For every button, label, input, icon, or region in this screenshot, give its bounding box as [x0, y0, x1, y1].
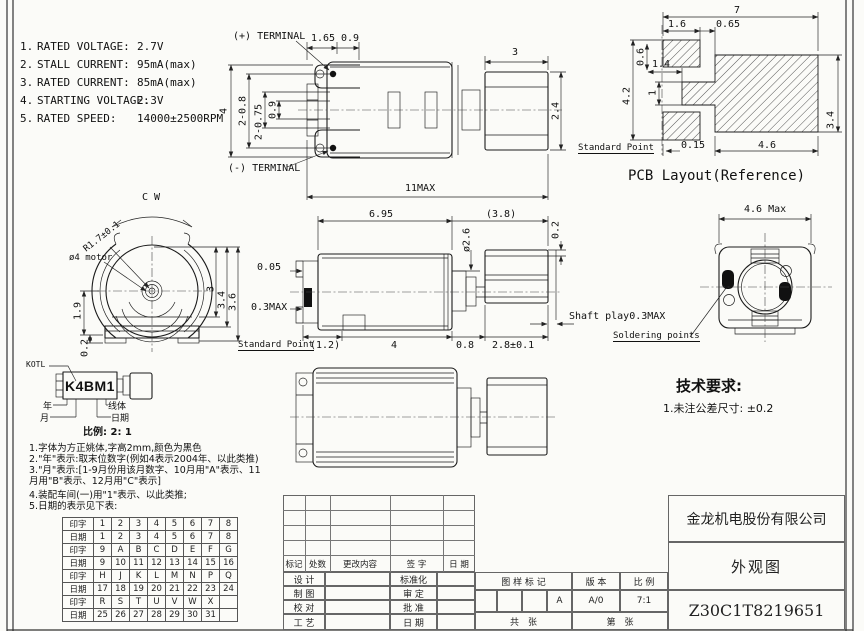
dim-label: 0.9 [341, 33, 359, 44]
spec-label: RATED CURRENT: [37, 76, 130, 89]
sig-review-label: 审 定 [390, 586, 437, 600]
sig-review-value [437, 586, 475, 600]
date-table-cell: M [166, 570, 184, 583]
note-line: 月用"B"表示、12月用"C"表示] [29, 473, 161, 487]
rev-header-content: 更改内容 [330, 556, 390, 571]
standard-point-label: Standard Point [578, 143, 654, 154]
spec-num: 4. [20, 94, 33, 107]
date-table-cell: K [130, 570, 148, 583]
date-table-cell: 印字 [63, 570, 94, 583]
dim-label: 1.6 [668, 19, 686, 30]
date-table-cell: V [166, 596, 184, 609]
date-table-cell: 2 [112, 531, 130, 544]
dim-label: 4 [391, 340, 397, 351]
date-table-cell: 30 [184, 609, 202, 622]
date-table-cell: 日期 [63, 609, 94, 622]
date-table-cell: 10 [112, 557, 130, 570]
spec-value: 95mA(max) [137, 58, 197, 71]
date-table-cell: H [94, 570, 112, 583]
sig-draft-label: 制 图 [283, 586, 325, 600]
date-table-cell: F [202, 544, 220, 557]
sig-approve-label: 批 准 [390, 600, 437, 614]
date-table-cell: 23 [202, 583, 220, 596]
spec-label: RATED VOLTAGE: [37, 40, 130, 53]
drawing-sheet: 1. RATED VOLTAGE: 2.7V 2. STALL CURRENT:… [0, 0, 864, 631]
date-table-cell: R [94, 596, 112, 609]
dim-label: 1.9 [73, 302, 84, 320]
spec-label: STARTING VOLTAGE: [37, 94, 150, 107]
stamp-cell [475, 590, 497, 612]
date-table-cell: Q [220, 570, 238, 583]
date-table-cell: N [184, 570, 202, 583]
date-table-cell: 25 [94, 609, 112, 622]
sig-standardize-label: 标准化 [390, 572, 437, 586]
date-table-cell: X [202, 596, 220, 609]
bottom-view-drawing [290, 368, 556, 467]
top-view-drawing [228, 41, 566, 200]
dim-label: 2-0.8 [238, 96, 249, 126]
date-table-cell: 28 [148, 609, 166, 622]
sig-approve-value [437, 600, 475, 614]
date-code-table: 印字12345678日期12345678印字9ABCDEFG日期91011121… [62, 517, 238, 622]
date-table-cell: 6 [184, 518, 202, 531]
date-table-cell: L [148, 570, 166, 583]
date-table-cell: B [130, 544, 148, 557]
stamp-cell [522, 590, 547, 612]
date-table-cell: 6 [184, 531, 202, 544]
spec-label: RATED SPEED: [37, 112, 116, 125]
date-table-cell: 29 [166, 609, 184, 622]
dim-label: 0.2 [551, 221, 562, 239]
date-table-cell: J [112, 570, 130, 583]
date-table-cell: 17 [94, 583, 112, 596]
marking-scale-label: 比例: 2: 1 [83, 423, 132, 438]
dim-label: 0.6 [636, 48, 647, 66]
spec-num: 1. [20, 40, 33, 53]
rev-header-date: 日 期 [443, 556, 475, 571]
date-table-cell: 18 [112, 583, 130, 596]
dim-label: 1 [648, 90, 659, 96]
pcb-layout-title: PCB Layout(Reference) [628, 168, 805, 184]
date-table-cell: 印字 [63, 544, 94, 557]
terminal-minus-label: (-) TERMINAL [228, 163, 300, 174]
dim-label: 4.2 [622, 87, 633, 105]
date-table-cell: 2 [112, 518, 130, 531]
date-table-cell: U [148, 596, 166, 609]
spec-num: 3. [20, 76, 33, 89]
sig-date-value [437, 614, 475, 630]
spec-label: STALL CURRENT: [37, 58, 130, 71]
date-table-cell: 4 [148, 531, 166, 544]
dim-label: 0.8 [456, 340, 474, 351]
dim-label: 0.3MAX [251, 302, 287, 313]
dim-label: 1.4 [652, 59, 670, 70]
sig-date-label: 日 期 [390, 614, 437, 630]
sig-design-label: 设 计 [283, 572, 325, 586]
dim-label: 6.95 [369, 209, 393, 220]
dim-label: 3 [206, 286, 217, 292]
stamp-cell [497, 590, 522, 612]
side-view-drawing [290, 216, 729, 341]
date-table-cell: 印字 [63, 518, 94, 531]
date-table-cell: 9 [94, 544, 112, 557]
date-table-cell: 7 [202, 531, 220, 544]
rev-header-count: 处数 [305, 556, 330, 571]
date-table-cell: 22 [184, 583, 202, 596]
dim-label: 0.2 [80, 339, 91, 357]
date-table-cell: 印字 [63, 596, 94, 609]
date-table-cell: T [130, 596, 148, 609]
rotation-cw-label: C W [142, 192, 160, 203]
date-table-cell [220, 596, 238, 609]
date-table-cell: 21 [166, 583, 184, 596]
dim-label: ø2.6 [462, 228, 473, 252]
spec-value: 2.7V [137, 40, 164, 53]
dim-label: 3.6 [228, 293, 239, 311]
dim-label: 3.4 [217, 291, 228, 309]
dim-label: (1.2) [310, 340, 340, 351]
rev-header-mark: 标记 [283, 556, 305, 571]
date-table-cell: 26 [112, 609, 130, 622]
date-table-cell: 1 [94, 531, 112, 544]
date-table-cell: 13 [166, 557, 184, 570]
dim-label: 11MAX [405, 183, 435, 194]
dim-label: 7 [734, 5, 740, 16]
date-table-cell: 11 [130, 557, 148, 570]
date-table-cell: 3 [130, 518, 148, 531]
date-table-cell: E [184, 544, 202, 557]
date-table-cell: A [112, 544, 130, 557]
marking-month-label: 月 [40, 411, 49, 424]
date-table-cell: 1 [94, 518, 112, 531]
pcb-layout-drawing [630, 12, 842, 156]
dim-label: 3 [512, 47, 518, 58]
dim-label: 3.4 [826, 111, 837, 129]
date-table-cell: 8 [220, 518, 238, 531]
date-table-cell: D [166, 544, 184, 557]
scale-value: 7:1 [620, 590, 668, 612]
sig-draft-value [325, 586, 390, 600]
dim-label: 0.05 [257, 262, 281, 273]
dim-label: 0.15 [681, 140, 705, 151]
date-table-cell: 日期 [63, 583, 94, 596]
sheet-number: 第 张 [572, 612, 668, 630]
spec-num: 5. [20, 112, 33, 125]
rev-header-sign: 签 字 [390, 556, 443, 571]
stamp-value: A [547, 590, 572, 612]
sig-standardize-value [437, 572, 475, 586]
company-name: 金龙机电股份有限公司 [668, 495, 845, 542]
date-table-cell: 12 [148, 557, 166, 570]
dim-label: 4 [219, 108, 230, 114]
date-table-cell: 日期 [63, 557, 94, 570]
shaft-play-label: Shaft play0.3MAX [569, 311, 665, 322]
spec-value: 14000±2500RPM [137, 112, 223, 125]
drawing-number: Z30C1T8219651 [668, 590, 845, 630]
brand-logo-label: KOTL [26, 360, 45, 369]
date-table-cell: 24 [220, 583, 238, 596]
sig-process-value [325, 614, 390, 630]
date-table-cell: 4 [148, 518, 166, 531]
date-table-cell: 27 [130, 609, 148, 622]
stamp-header: 图 样 标 记 [475, 572, 572, 590]
sheets-total: 共 张 [475, 612, 572, 630]
date-table-cell: 5 [166, 518, 184, 531]
dim-label: 2-0.75 [254, 104, 265, 140]
note-line: 5.日期的表示见下表: [29, 498, 117, 512]
date-table-cell: 日期 [63, 531, 94, 544]
date-table-cell: 31 [202, 609, 220, 622]
soldering-points-label: Soldering points [613, 331, 700, 342]
motor-marking-code: K4BM1 [63, 372, 117, 399]
spec-value: 85mA(max) [137, 76, 197, 89]
dim-label: 2.8±0.1 [492, 340, 534, 351]
date-table-cell: C [148, 544, 166, 557]
tech-req-title: 技术要求: [676, 375, 742, 396]
dim-label: 0.9 [268, 101, 279, 119]
date-table-cell: P [202, 570, 220, 583]
date-table-cell: 9 [94, 557, 112, 570]
date-table-cell: 5 [166, 531, 184, 544]
sig-process-label: 工 艺 [283, 614, 325, 630]
date-table-cell: 20 [148, 583, 166, 596]
dim-label: 1.65 [311, 33, 335, 44]
dim-label: 0.65 [716, 19, 740, 30]
terminal-plus-label: (+) TERMINAL [233, 31, 305, 42]
date-table-cell: 8 [220, 531, 238, 544]
date-table-cell: W [184, 596, 202, 609]
scale-header: 比 例 [620, 572, 668, 590]
motor-diameter-label: ø4 motor [69, 253, 112, 263]
date-table-cell: S [112, 596, 130, 609]
standard-point-label: Standard Point [238, 340, 314, 351]
tech-req-item: 1.未注公差尺寸: ±0.2 [663, 400, 773, 416]
date-table-cell: 15 [202, 557, 220, 570]
version-value: A/0 [572, 590, 620, 612]
date-table-cell: 3 [130, 531, 148, 544]
date-table-cell [220, 609, 238, 622]
dim-label: 4.6 Max [744, 204, 786, 215]
sig-check-label: 校 对 [283, 600, 325, 614]
sig-design-value [325, 572, 390, 586]
sig-check-value [325, 600, 390, 614]
spec-value: 2.3V [137, 94, 164, 107]
date-table-cell: 16 [220, 557, 238, 570]
date-table-cell: G [220, 544, 238, 557]
drawing-title: 外观图 [668, 542, 845, 590]
date-table-cell: 14 [184, 557, 202, 570]
rear-view-drawing [700, 214, 832, 342]
date-table-cell: 19 [130, 583, 148, 596]
dim-label: 4.6 [758, 140, 776, 151]
date-table-cell: 7 [202, 518, 220, 531]
version-header: 版 本 [572, 572, 620, 590]
spec-num: 2. [20, 58, 33, 71]
dim-label: 2.4 [551, 102, 562, 120]
dim-label: (3.8) [486, 209, 516, 220]
